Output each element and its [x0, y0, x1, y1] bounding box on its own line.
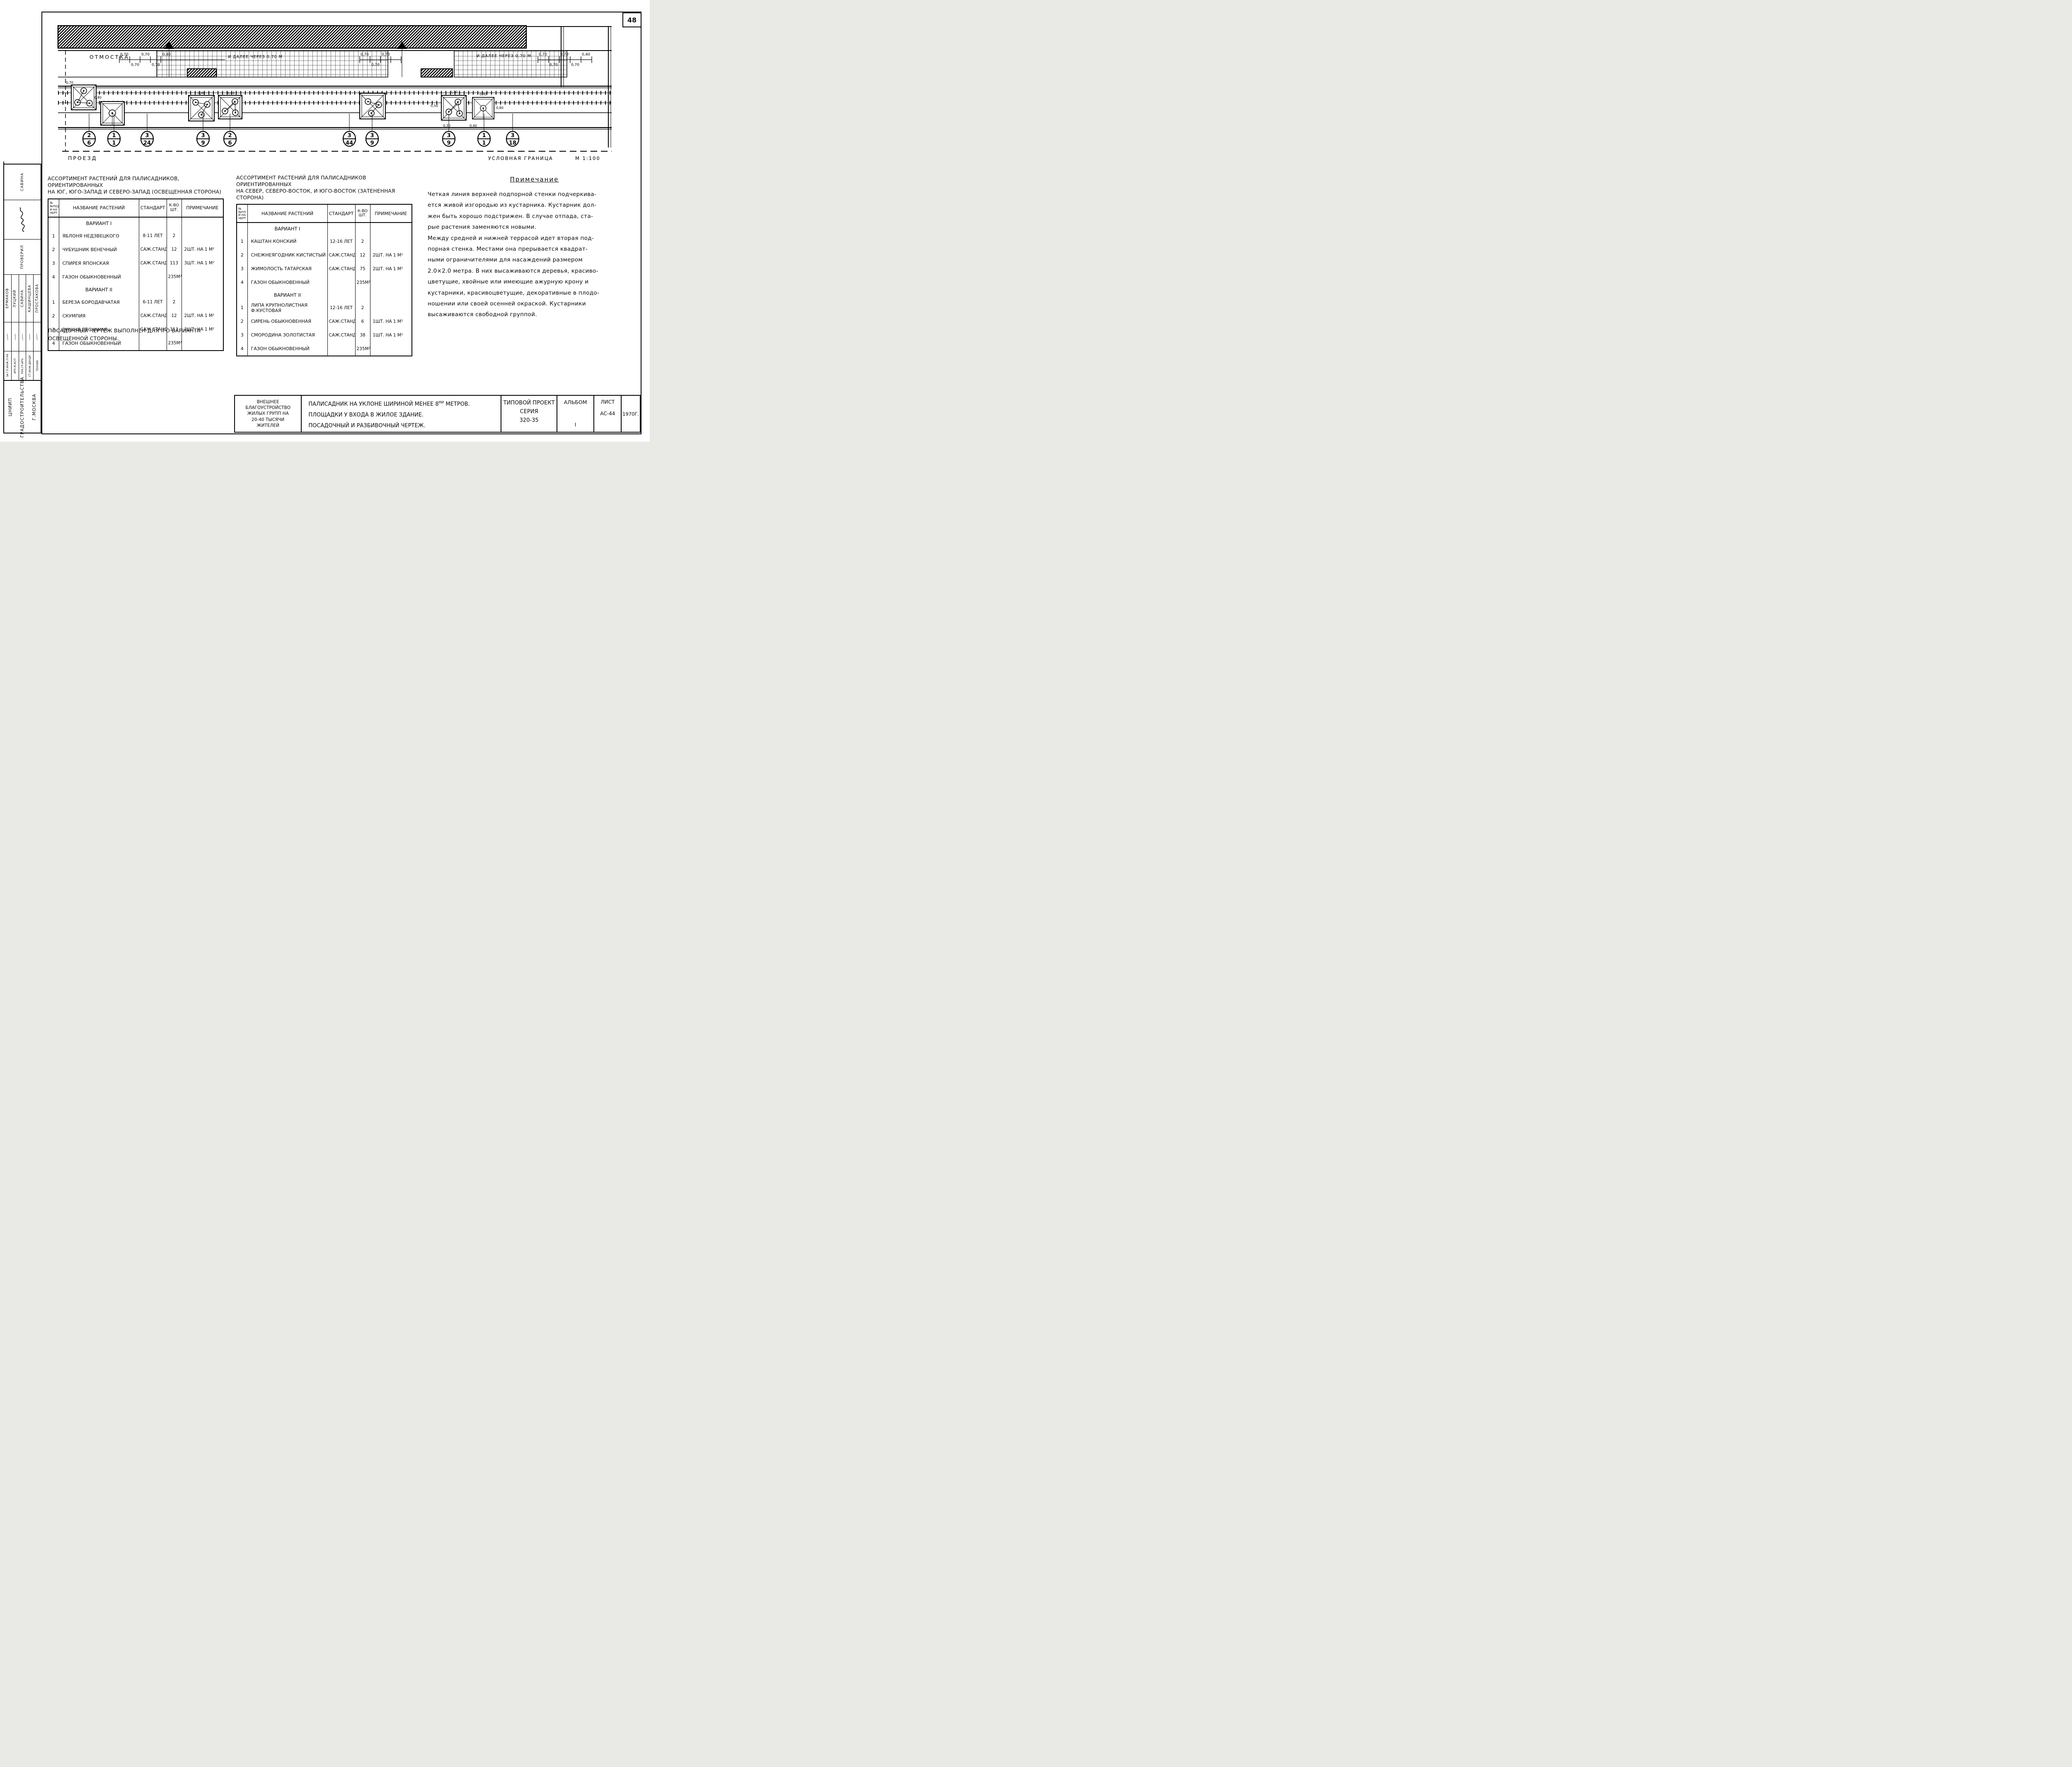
otmostka-label: отмостка — [90, 54, 129, 60]
person-name: Луцкий — [13, 290, 17, 307]
dim-note: и далее через 0,70 м — [228, 55, 283, 59]
plant-callout: 324 — [141, 114, 153, 146]
boundary-label: условная граница — [488, 155, 553, 161]
table-row: 4Газон обыкновенный235м² — [48, 270, 223, 284]
note-line: кустарники, красивоцветущие, декоративны… — [428, 288, 641, 298]
dim-label: 0,40 — [479, 92, 487, 96]
building-wall-band — [58, 26, 526, 48]
table-row: 2Чубушник венечныйсаж.станд122шт. на 1 м… — [48, 243, 223, 257]
year-cell: 1970г. — [621, 396, 640, 432]
site-plan: 0,70 0,70 0,70 0,70 0,40 и далее через 0… — [57, 24, 615, 163]
signatures-row — [4, 322, 41, 351]
planting-square — [441, 95, 466, 120]
person-role: Рук.гр.арх. — [21, 358, 24, 374]
note-title: Примечание — [485, 176, 584, 183]
dim-label: 0,40 — [470, 124, 477, 128]
note-line: ется живой изгородью из кустарника. Куст… — [428, 200, 641, 211]
variant-row: Вариант I — [48, 217, 223, 229]
checked-label-cell: Проверил — [4, 239, 41, 274]
person-name-cell: Луцкий — [11, 275, 19, 322]
person-role-cell: За гл.инж.п-ра — [4, 351, 11, 380]
dim-label: 0,70 — [361, 53, 369, 57]
person-role-cell: Техник — [33, 351, 41, 380]
table-header-row: №№пли начертНазвание растенийСтандартК-в… — [237, 204, 412, 223]
signature-cell — [19, 322, 26, 351]
proezd-label: проезд — [68, 155, 97, 161]
dim-label: 0,70 — [371, 63, 380, 67]
note-line: рые растения заменяются новыми. — [428, 222, 641, 232]
svg-text:6: 6 — [87, 140, 91, 146]
svg-text:2: 2 — [87, 133, 91, 139]
svg-text:44: 44 — [346, 140, 353, 146]
organization-line: г.Москва — [32, 394, 37, 420]
dim-label: 0,40 — [198, 91, 205, 95]
person-name: Кашинцева — [28, 285, 32, 312]
note-line: 2.0×2.0 метра. В них высаживаются деревь… — [428, 266, 641, 276]
dim-label: 0,70 — [549, 63, 558, 67]
sheet-cell: Лист АС-44 — [593, 396, 621, 432]
planting-square — [360, 93, 385, 119]
table-row: 4Газон обыкновенный235м² — [237, 342, 412, 356]
project-name-cell: Внешнее благоустройство жилых групп на 2… — [235, 396, 301, 432]
footnote-line: освещенной стороны. — [48, 334, 226, 342]
note-line: высаживаются свободной группой. — [428, 309, 641, 320]
variant-row: Вариант II — [237, 289, 412, 301]
footnote: Посадочный чертеж выполнен для Iго вариа… — [48, 327, 226, 343]
dim-note: и далее через 0,70 м — [477, 54, 531, 58]
svg-text:3: 3 — [447, 133, 450, 139]
dim-label: 0,70 — [560, 53, 569, 57]
signature — [12, 333, 18, 340]
dim-label: 0,80 — [496, 106, 503, 110]
names-row: Ермаков Луцкий Савина Кашинцева Простако… — [4, 274, 41, 322]
svg-text:2: 2 — [228, 133, 232, 139]
entrance-mat — [187, 69, 216, 77]
dim-label: 0,70 — [382, 53, 390, 57]
checked-signature-cell — [4, 200, 41, 239]
svg-text:9: 9 — [370, 140, 374, 146]
person-name-cell: Ермаков — [4, 275, 11, 322]
stamp-column: Савина Проверил Ермаков Луцкий Савина Ка… — [3, 164, 41, 433]
planting-square — [472, 97, 494, 119]
svg-text:1: 1 — [112, 133, 116, 139]
dim-label: 0,70 — [539, 53, 547, 57]
person-name: Простакова — [35, 284, 39, 313]
svg-text:24: 24 — [143, 140, 151, 146]
person-role-cell: Рук.гр.арх. — [19, 351, 26, 380]
dim-label: 0,40 — [582, 53, 590, 57]
title-block: Внешнее благоустройство жилых групп на 2… — [234, 395, 641, 433]
checked-name-cell: Савина — [4, 165, 41, 200]
person-name: Ермаков — [5, 288, 10, 308]
organization-line: Градостроительства — [20, 377, 25, 438]
page-number-box: 48 — [622, 12, 641, 27]
table-header-row: №№поди начертНазвание растенийСтандартК-… — [48, 199, 223, 217]
svg-text:3: 3 — [347, 133, 351, 139]
plant-callout: 344 — [343, 114, 356, 146]
planting-square — [189, 95, 214, 121]
signature — [27, 333, 33, 340]
table-row: 3Спирея японскаясаж.станд1133шт. на 1 м² — [48, 257, 223, 270]
note-line: жен быть хорошо подстрижен. В случае отп… — [428, 211, 641, 222]
person-role: За гл.инж.п-ра — [6, 354, 9, 377]
table-row: 3Смородина золотистаясаж.станд381шт. на … — [237, 328, 412, 342]
signature — [17, 207, 27, 232]
table-row: 1Липа крупнолистная ф.кустовая12-16 лет2 — [237, 301, 412, 315]
person-name-cell: Савина — [19, 275, 26, 322]
svg-text:3: 3 — [511, 133, 514, 139]
person-name-cell: Простакова — [33, 275, 41, 322]
signature-cell — [26, 322, 33, 351]
dim-label: 0,40 — [162, 53, 171, 57]
dim-label: 0,70 — [66, 81, 73, 85]
signature-cell — [4, 322, 11, 351]
person-role: Ст.инж.дендр. — [28, 354, 31, 377]
caption-line: Площадки у входа в жилое здание. — [308, 410, 501, 421]
dim-label: 0,30 — [450, 90, 457, 94]
person-name-cell: Кашинцева — [26, 275, 33, 322]
signature — [4, 333, 11, 340]
variant-row: Вариант II — [48, 284, 223, 295]
organization-line: ЦНИИП — [8, 398, 13, 416]
checked-name: Савина — [20, 173, 24, 191]
svg-text:3: 3 — [201, 133, 205, 139]
dim-label: 0,70 — [571, 63, 579, 67]
roles-row: За гл.инж.п-ра Арх.м.асп. Рук.гр.арх. Ст… — [4, 351, 41, 380]
svg-text:1: 1 — [112, 140, 116, 146]
plant-callout: 318 — [506, 114, 519, 146]
signature-cell — [11, 322, 19, 351]
page-number: 48 — [627, 16, 637, 24]
table-row: 4Газон обыкновенный235м² — [237, 276, 412, 289]
checked-label: Проверил — [20, 245, 24, 269]
drawing-sheet: 48 Савина Проверил Ермаков Луцкий Савина… — [0, 0, 650, 442]
caption-line: Палисадник на уклоне шириной менее 8ми м… — [308, 399, 501, 410]
dim-label: 0,50 — [431, 104, 438, 108]
plants-table-shaded: Ассортимент растений для палисадников ор… — [236, 175, 414, 356]
note-line: порная стенка. Местами она прерывается к… — [428, 244, 641, 254]
dim-label: 0,70 — [152, 63, 160, 67]
footnote-line: Посадочный чертеж выполнен для Iго вариа… — [48, 327, 226, 334]
entrance-mat — [421, 69, 453, 77]
dim-label: 0,70 — [131, 63, 139, 67]
table-row: 2Скумпиясаж.станд.122шт. на 1 м² — [48, 309, 223, 323]
planting-square — [101, 102, 124, 125]
signature — [34, 333, 41, 340]
svg-text:3: 3 — [145, 133, 149, 139]
table-title: Ассортимент растений для палисадников ор… — [236, 175, 414, 201]
person-role-cell: Арх.м.асп. — [11, 351, 19, 380]
dim-label: 0,70 — [141, 53, 150, 57]
svg-text:1: 1 — [482, 140, 486, 146]
plants-table-sunny: Ассортимент растений для палисадников, о… — [48, 176, 226, 351]
table-title: Ассортимент растений для палисадников, о… — [48, 176, 226, 196]
signature — [19, 333, 26, 340]
signature-cell — [33, 322, 41, 351]
note-line: Четкая линия верхней подпорной стенки по… — [428, 189, 641, 200]
table-row: 3Жимолость татарскаясаж.станд.752шт. на … — [237, 262, 412, 276]
person-name: Савина — [20, 290, 24, 307]
table-row: 2Снежнеягодник кистистыйсаж.станд.122шт.… — [237, 248, 412, 262]
caption-line: Посадочный и разбивочный чертеж. — [308, 421, 501, 431]
dim-label: 0,40 — [227, 91, 235, 95]
table-row: 1Яблоня Недзвецкого8-11 лет2 — [48, 229, 223, 243]
svg-text:9: 9 — [447, 140, 450, 146]
planting-square — [71, 85, 96, 110]
plant-callout: 26 — [83, 114, 95, 146]
note-line: ными ограничителями для насаждений разме… — [428, 254, 641, 265]
dim-label: 0,80 — [94, 96, 102, 99]
organization-cell: ЦНИИП Градостроительства г.Москва — [4, 380, 41, 433]
person-role-cell: Ст.инж.дендр. — [26, 351, 33, 380]
svg-text:9: 9 — [201, 140, 205, 146]
table-row: 1Береза бородавчатая6-11 лет2 — [48, 295, 223, 309]
note-section: Примечание Четкая линия верхней подпорно… — [428, 176, 641, 320]
note-line: ношении или своей осенней окраской. Куст… — [428, 298, 641, 309]
sheet-caption-cell: Палисадник на уклоне шириной менее 8ми м… — [301, 396, 501, 432]
album-cell: Альбом I — [557, 396, 594, 432]
series-cell: Типовой проект Серия 320-35 — [501, 396, 556, 432]
table-row: 1Каштан конский12-16 лет2 — [237, 235, 412, 248]
scale-label: М 1:100 — [575, 155, 600, 161]
note-line: Между средней и нижней террасой идет вто… — [428, 233, 641, 244]
dim-label: 0,30 — [443, 124, 450, 128]
person-role: Техник — [36, 360, 39, 371]
person-role: Арх.м.асп. — [13, 358, 17, 374]
plants-table: №№пли начертНазвание растенийСтандартК-в… — [236, 204, 412, 356]
table-row: 2Сирень обыкновеннаясаж:станд61шт. на 1 … — [237, 315, 412, 328]
svg-text:1: 1 — [482, 133, 486, 139]
svg-text:18: 18 — [509, 140, 516, 146]
svg-text:6: 6 — [228, 140, 232, 146]
svg-text:3: 3 — [370, 133, 374, 139]
note-line: цветущие, хвойные или имеющие ажурную кр… — [428, 276, 641, 287]
variant-row: Вариант I — [237, 223, 412, 235]
